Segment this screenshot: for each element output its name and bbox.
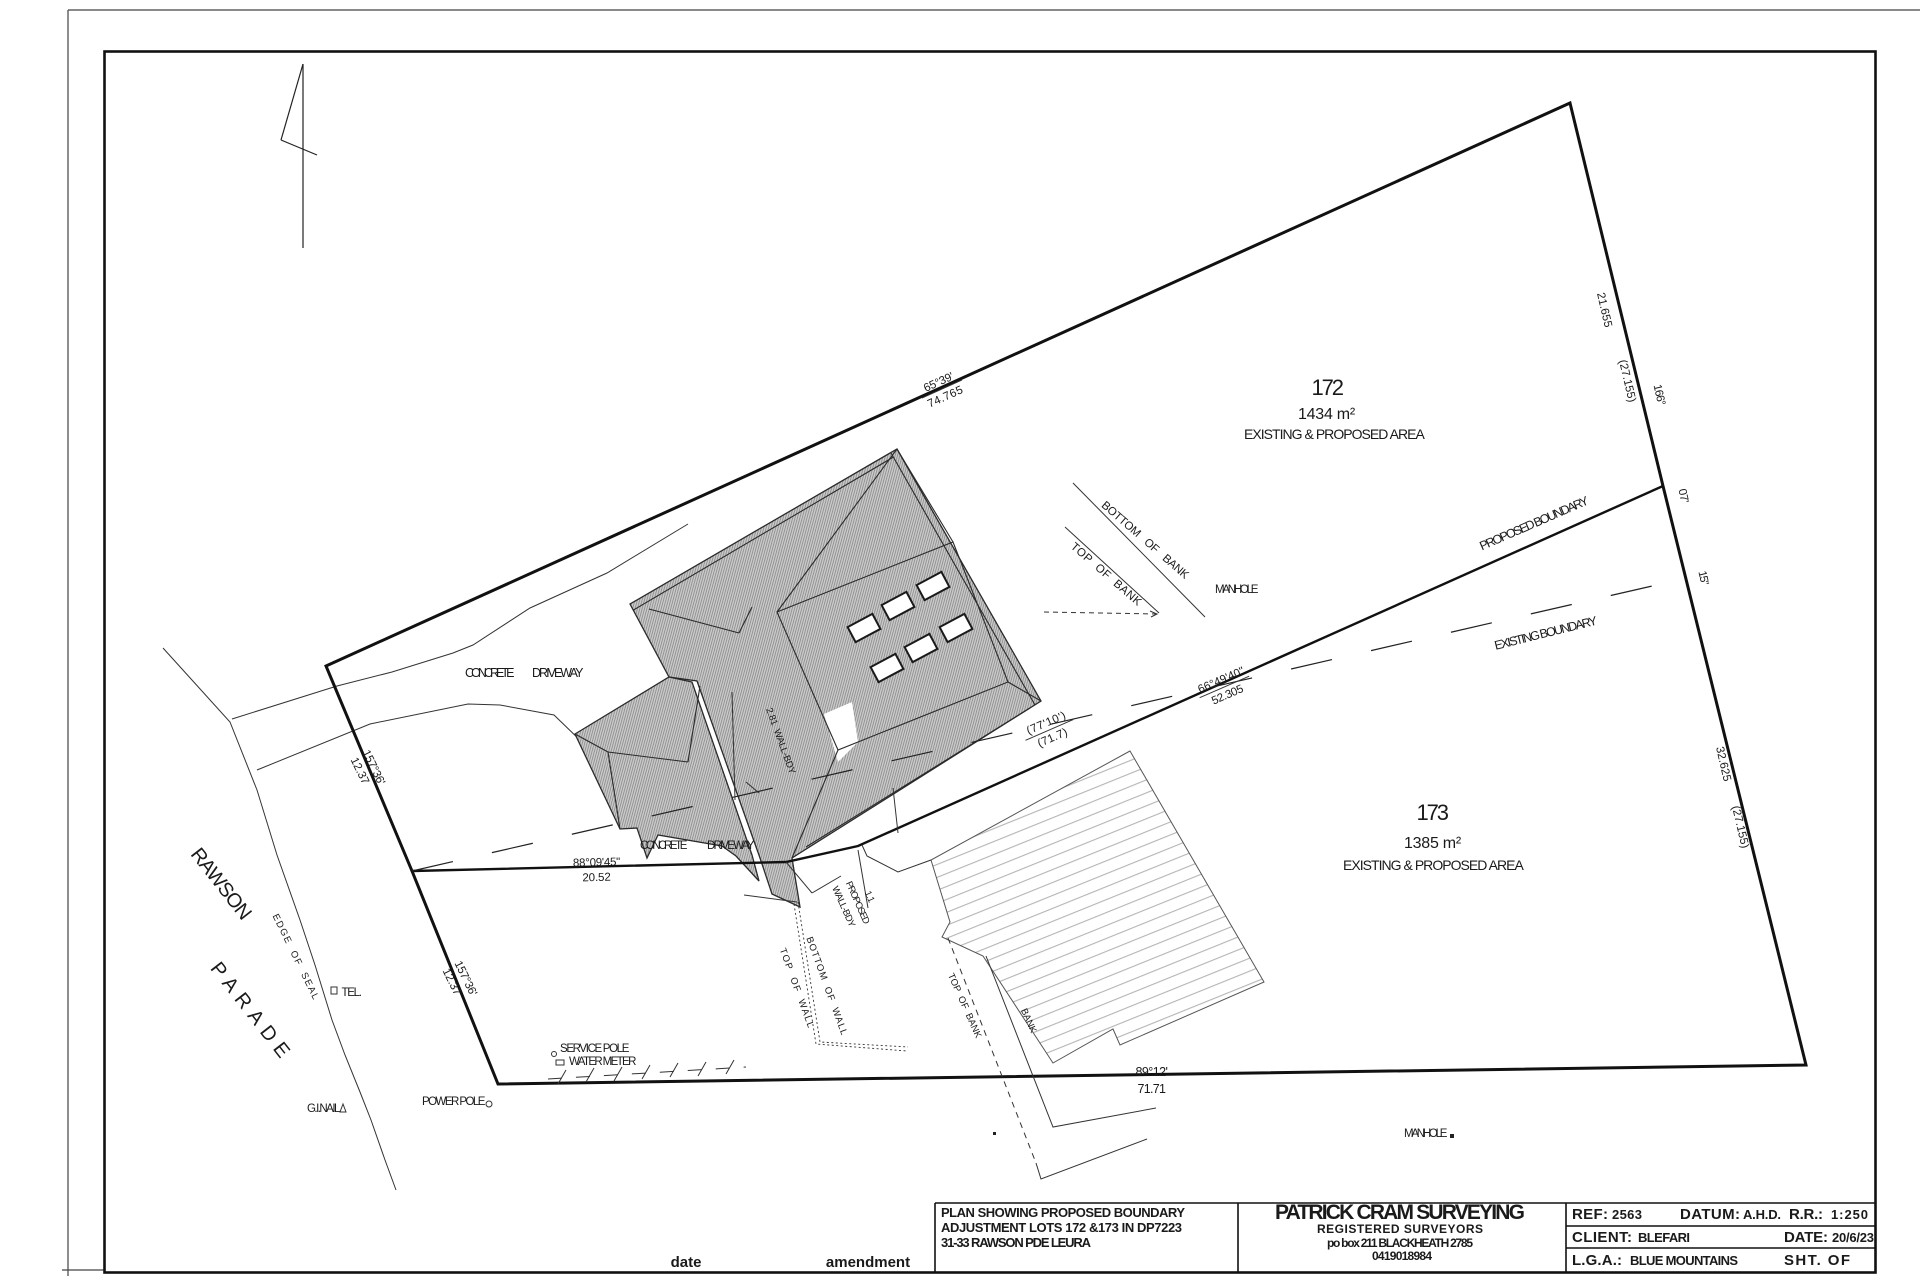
svg-text:DATE:: DATE: [1784, 1229, 1828, 1246]
svg-text:BLEFARI: BLEFARI [1638, 1230, 1690, 1245]
svg-text:BOTTOM OF BANK: BOTTOM OF BANK [1099, 499, 1191, 582]
svg-text:po box 211 BLACKHEATH 2785: po box 211 BLACKHEATH 2785 [1327, 1236, 1473, 1250]
svg-text:REGISTERED SURVEYORS: REGISTERED SURVEYORS [1317, 1222, 1483, 1236]
svg-text:DRIVEWAY: DRIVEWAY [532, 666, 584, 680]
svg-text:173: 173 [1417, 800, 1450, 825]
svg-text:166°: 166° [1651, 383, 1668, 407]
svg-text:EDGE OF SEAL: EDGE OF SEAL [270, 912, 321, 1001]
svg-text:1434 m²: 1434 m² [1298, 406, 1356, 423]
svg-text:L.G.A.:: L.G.A.: [1572, 1252, 1622, 1269]
svg-text:POWER POLE: POWER POLE [422, 1096, 486, 1108]
svg-text:G.I.NAIL: G.I.NAIL [307, 1103, 341, 1115]
svg-text:CONCRETE: CONCRETE [640, 840, 688, 852]
svg-text:amendment: amendment [826, 1254, 910, 1271]
svg-text:172: 172 [1312, 375, 1345, 400]
svg-text:date: date [671, 1254, 702, 1271]
svg-text:SHT. OF: SHT. OF [1784, 1252, 1850, 1269]
svg-text:MANHOLE: MANHOLE [1215, 584, 1259, 596]
svg-text:CLIENT:: CLIENT: [1572, 1229, 1632, 1246]
svg-text:BLUE MOUNTAINS: BLUE MOUNTAINS [1630, 1253, 1738, 1268]
svg-text:PARADE: PARADE [206, 958, 296, 1065]
svg-text:PATRICK CRAM SURVEYING: PATRICK CRAM SURVEYING [1275, 1201, 1525, 1224]
svg-text:DRIVEWAY: DRIVEWAY [707, 840, 755, 852]
svg-text:ADJUSTMENT LOTS 172 &173 IN DP: ADJUSTMENT LOTS 172 &173 IN DP7223 [941, 1220, 1182, 1235]
svg-text:RAWSON: RAWSON [186, 844, 258, 927]
svg-text:DATUM:: DATUM: [1680, 1206, 1740, 1223]
svg-text:EXISTING BOUNDARY: EXISTING BOUNDARY [1493, 613, 1599, 652]
svg-text:31-33 RAWSON PDE LEURA: 31-33 RAWSON PDE LEURA [941, 1235, 1092, 1250]
svg-text:2563: 2563 [1612, 1207, 1642, 1222]
svg-text:WATER METER: WATER METER [569, 1056, 637, 1068]
svg-text:71.71: 71.71 [1138, 1082, 1167, 1096]
svg-text:TOP OF WALL: TOP OF WALL [777, 947, 816, 1030]
svg-text:0419018984: 0419018984 [1372, 1249, 1432, 1263]
svg-text:20.52: 20.52 [582, 872, 611, 885]
svg-text:A.H.D.: A.H.D. [1743, 1207, 1781, 1222]
svg-text:07': 07' [1675, 488, 1690, 505]
svg-text:20/6/23: 20/6/23 [1832, 1230, 1874, 1245]
svg-text:EXISTING & PROPOSED AREA: EXISTING & PROPOSED AREA [1244, 426, 1426, 442]
svg-text:R.R.:: R.R.: [1789, 1206, 1823, 1223]
svg-text:88°09'45": 88°09'45" [573, 856, 621, 869]
svg-text:CONCRETE: CONCRETE [465, 666, 515, 680]
svg-text:21.655: 21.655 [1594, 291, 1614, 329]
svg-text:15": 15" [1695, 570, 1710, 587]
svg-text:1:250: 1:250 [1831, 1207, 1868, 1222]
svg-text:PLAN SHOWING PROPOSED BOUNDARY: PLAN SHOWING PROPOSED BOUNDARY [941, 1205, 1185, 1220]
svg-text:TOP OF BANK: TOP OF BANK [1068, 541, 1144, 609]
svg-text:SERVICE POLE: SERVICE POLE [560, 1043, 630, 1055]
svg-text:TEL.: TEL. [342, 987, 363, 999]
svg-text:1385 m²: 1385 m² [1404, 835, 1462, 852]
svg-text:MANHOLE: MANHOLE [1404, 1128, 1448, 1140]
svg-text:89°12': 89°12' [1136, 1065, 1169, 1079]
svg-text:TOP OF BANK: TOP OF BANK [945, 972, 984, 1041]
svg-text:EXISTING & PROPOSED AREA: EXISTING & PROPOSED AREA [1343, 857, 1525, 873]
svg-text:REF:: REF: [1572, 1206, 1608, 1223]
